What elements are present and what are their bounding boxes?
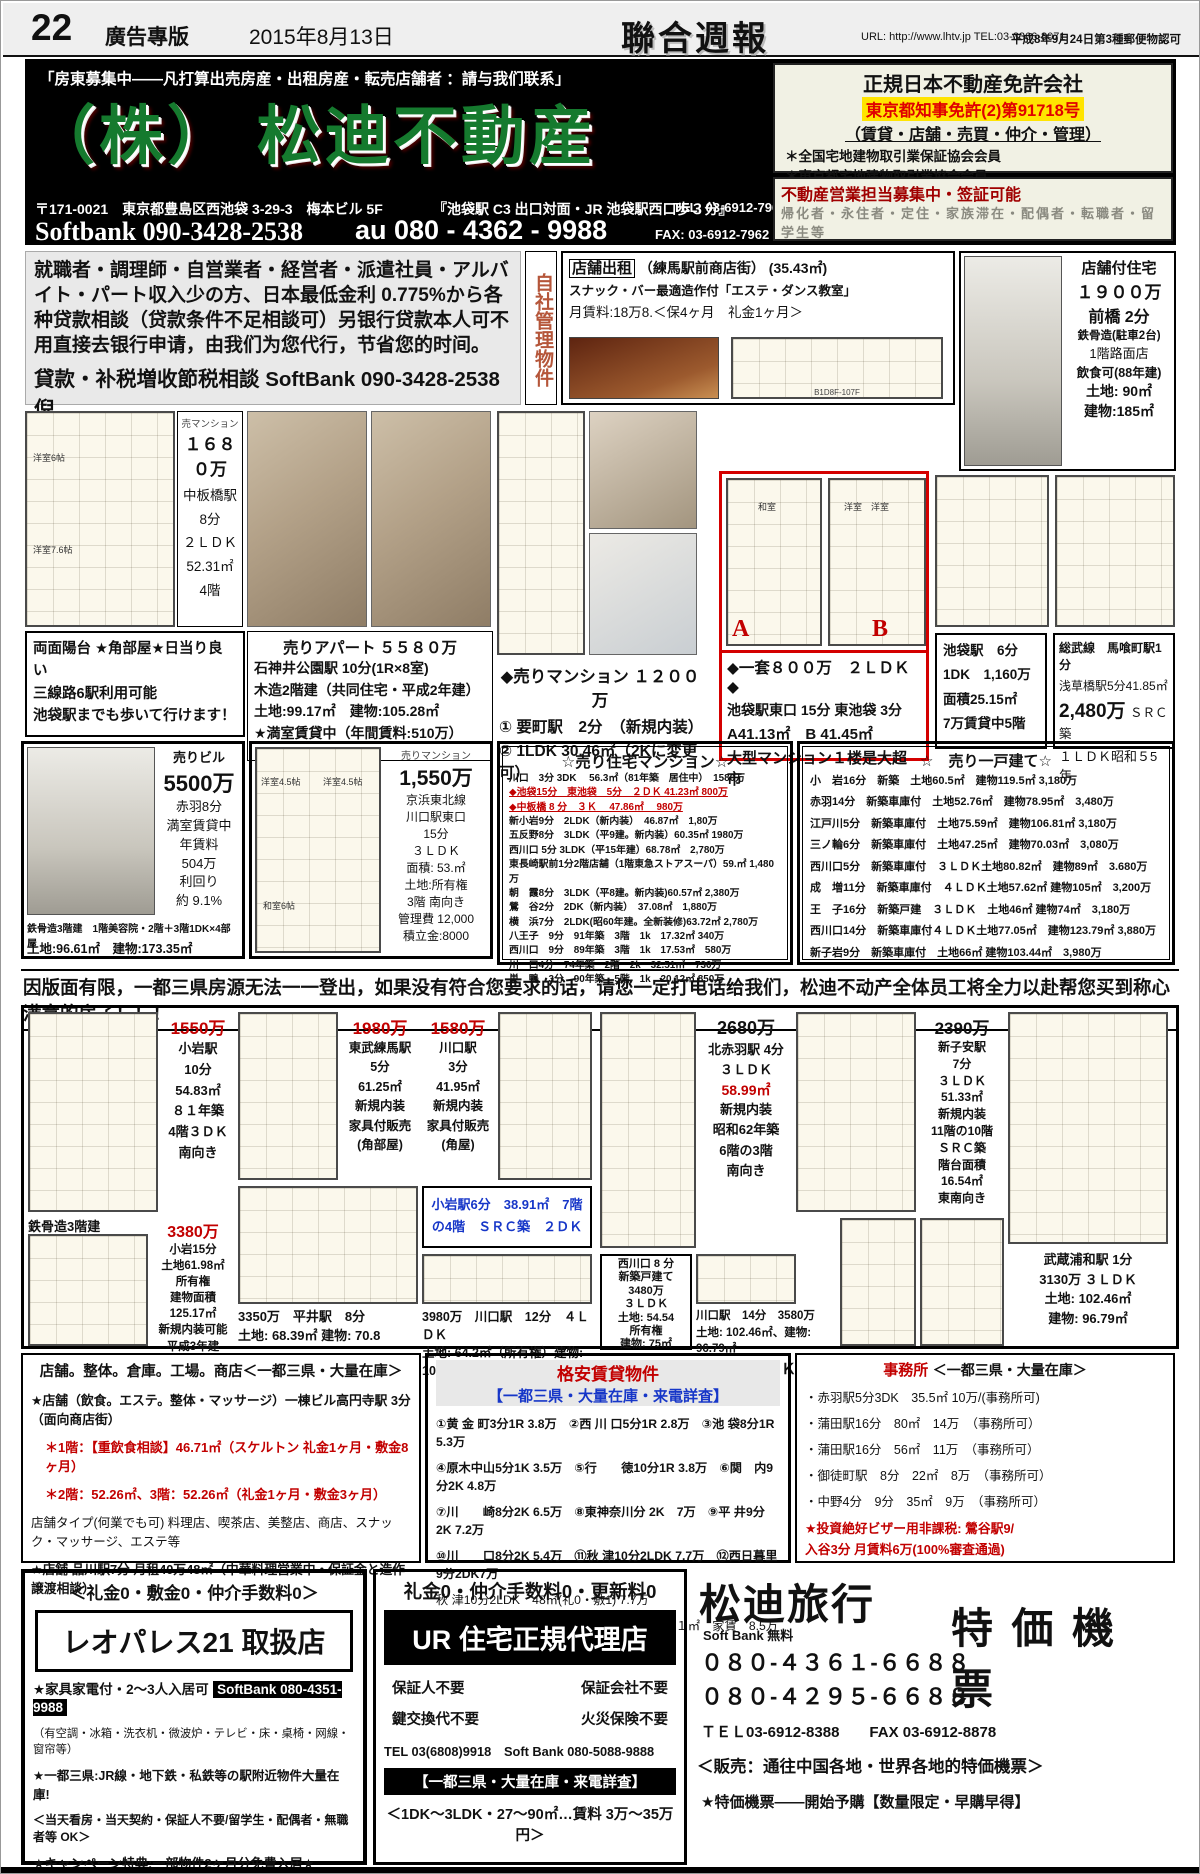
rental-box-subtitle: 【一都三県・大量在庫・来電詳査】 bbox=[488, 1388, 728, 1405]
license-number: 東京都知事免許(2)第91718号 bbox=[862, 97, 1085, 121]
featured-listing-800: 和室 洋室 洋室 A B ◆一套８００万 ２ＬＤＫ ◆ 池袋駅東口 15分 東池… bbox=[719, 471, 929, 761]
bath-photo bbox=[589, 533, 697, 655]
house-list-row: 三ノ輪6分 新築車庫付 土地47.25㎡ 建物70.03㎡ 3,080万 bbox=[810, 835, 1162, 856]
loan-ad: 就職者・調理師・自営業者・経営者・派遣社員・アルバイト・パート収入少の方、日本最… bbox=[25, 251, 521, 405]
leopalace-line4: ＜当天看房・当天契約・保証人不要/留学生・配偶者・無職者等 OK＞ bbox=[33, 1811, 355, 1845]
leopalace-title: レオパレス21 取扱店 bbox=[35, 1610, 353, 1672]
mid-card-2680: 2680万 北赤羽駅 4分 ３ＬＤＫ 58.99㎡ 新規内装 昭和62年築 6階… bbox=[700, 1014, 792, 1181]
loan-body: 就職者・調理師・自営業者・経営者・派遣社員・アルバイト・パート収入少の方、日本最… bbox=[34, 258, 512, 358]
listing-1200-info: ◆売りマンション １２００万 ① 要町駅 2分 （新規内装） ② 1LDK 30… bbox=[497, 661, 703, 753]
house-list-title: ☆ 売り一戸建て☆ bbox=[810, 750, 1162, 771]
issue-date: 2015年8月13日 bbox=[249, 21, 394, 51]
room-label: 洋室4.5帖 bbox=[323, 775, 363, 788]
shop-rent-location: （練馬駅前商店街） (35.43㎡) bbox=[639, 260, 827, 276]
property-photo-5580a bbox=[247, 411, 367, 627]
floorplan-mid-1980 bbox=[238, 1012, 338, 1180]
ur-top: 礼金0・仲介手数料0・更新料0 bbox=[384, 1578, 676, 1604]
listing-1680-notes: 両面陽台 ★角部屋★日当り良い 三線路6駅利用可能 池袋駅までも歩いて行けます！ bbox=[25, 631, 245, 737]
listing-5580-details: 石神井公園駅 10分(1R×8室) 木造2階建（共同住宅・平成2年建） 土地:9… bbox=[254, 658, 486, 745]
shop-rent-floorplan: B1D8F-107F bbox=[731, 337, 943, 399]
listing-1200-line1: ① 要町駅 2分 （新規内装） bbox=[499, 715, 701, 737]
ur-ad: 礼金0・仲介手数料0・更新料0 UR 住宅正規代理店 保証人不要 保証会社不要 … bbox=[373, 1569, 687, 1865]
travel-ticket-label: 特 価 機 票 bbox=[951, 1595, 1171, 1717]
mid-card-3380: 3380万 小岩15分 土地61.98㎡ 所有権 建物面積 125.17㎡ 新規… bbox=[152, 1218, 234, 1355]
travel-phone1: ０８０-４３６１-６６８８ bbox=[701, 1645, 971, 1677]
floorplan-sobu bbox=[1055, 475, 1175, 627]
floorplan-ikebukuro bbox=[935, 475, 1049, 627]
ur-guarantor: 保証人不要 bbox=[392, 1677, 465, 1698]
office-box-subtitle: ＜一都三県・大量在庫＞ bbox=[933, 1362, 1087, 1378]
shop-box-line1: ★店舗（飲食。エステ。整体・マッサージ）一棟ビル高円寺駅 3分（面向商店街） bbox=[31, 1390, 411, 1428]
leopalace-line1-wrap: ★家具家電付・2〜3人入居可 SoftBank 080-4351-9988 bbox=[33, 1678, 355, 1717]
listing-5500-price: 5500万 bbox=[158, 766, 240, 798]
listing-1550-tag: 売りマンション bbox=[384, 747, 488, 762]
ur-bottom: ＜1DK〜3LDK・27〜90㎡…賃料 3万〜35万円＞ bbox=[384, 1803, 676, 1845]
mansion-list-row: 西川口 5分 3LDK（平15年建）68.78㎡ 2,780万 bbox=[509, 844, 781, 858]
shop-house-price: １９００万 bbox=[1065, 278, 1173, 303]
leopalace-line3: ★一都三県:JR線・地下鉄・私鉄等の駅附近物件大量在庫! bbox=[33, 1765, 355, 1803]
shop-box-line2: ＊1階：【重飲食相談】46.71㎡（スケルトン 礼金1ヶ月・敷金8ヶ月） bbox=[31, 1437, 411, 1475]
mansion-list-row: ◆中板橋 8 分 ３Ｋ 47.86㎡ 980万 bbox=[509, 801, 781, 815]
floorplan-mid-3980 bbox=[422, 1254, 592, 1304]
listing-5500-tag: 売りビル bbox=[158, 747, 240, 766]
shop-house-station: 前橋 2分 bbox=[1065, 303, 1173, 327]
listing-800-title: ◆一套８００万 ２ＬＤＫ ◆ bbox=[727, 656, 921, 697]
floorplan-mid-2390 bbox=[796, 1012, 916, 1212]
shop-rent-box: 店舗出租 （練馬駅前商店街） (35.43㎡) スナック・バー最適造作付「エステ… bbox=[561, 251, 955, 405]
room-label: 洋室7.6帖 bbox=[33, 543, 73, 556]
house-list-row: 成 増11分 新築車庫付 ４ＬＤＫ土地57.62㎡ 建物105㎡ 3,200万 bbox=[810, 878, 1162, 899]
floorplan-mid-3350 bbox=[238, 1186, 418, 1304]
shop-box-line4: 店舗タイプ(何業でも可) 料理店、喫茶店、美整店、商店、スナック・マッサージ、エ… bbox=[31, 1512, 411, 1550]
floorplan-mid-1580 bbox=[498, 1012, 592, 1180]
room-label: 和室6帖 bbox=[263, 899, 295, 912]
license-services: （賃貸・店舗・売買・仲介・管理） bbox=[775, 121, 1171, 145]
shop-house-note: 飲食可(88年建) bbox=[1065, 362, 1173, 381]
mansion-list-row: 西川口 9分 89年築 3階 1k 17.53㎡ 580万 bbox=[509, 944, 781, 958]
leopalace-line2: （有空調・冰箱・洗衣机・微波炉・テレビ・床・桌椅・网線・窗帘等） bbox=[33, 1725, 355, 1757]
travel-ad: 松迪旅行 Soft Bank 無料 ０８０-４３６１-６６８８ ０８０-４２９５… bbox=[693, 1569, 1177, 1865]
ur-key-fee: 鍵交換代不要 bbox=[392, 1708, 479, 1729]
floorplan-caption: B1D8F-107F bbox=[733, 388, 941, 397]
leopalace-ad: ＜礼金0・敷金0・仲介手数料0＞ レオパレス21 取扱店 ★家具家電付・2〜3人… bbox=[21, 1569, 367, 1865]
section-label: 廣告專版 bbox=[105, 21, 189, 51]
mansion-list-row: 鶯 谷2分 2DK（新内装） 37.08㎡ 1,880万 bbox=[509, 901, 781, 915]
listing-sobu-info: 総武線 馬喰町駅1分 浅草橋駅5分41.85㎡ 2,480万 ＳＲＣ築 １ＬＤＫ… bbox=[1053, 633, 1175, 749]
mid-card-1580: 1580万 川口駅 3分 41.95㎡ 新規内装 家具付販売 (角屋) bbox=[422, 1014, 494, 1155]
room-label: 洋室6帖 bbox=[33, 451, 65, 464]
company-name: （株） 松迪不動産 bbox=[31, 85, 776, 177]
mid-1980-price: 1980万 bbox=[342, 1014, 418, 1039]
recruit-body: 帰化者・永住者・定住・家族滞在・配偶者・転職者・留学生等 bbox=[781, 205, 1165, 243]
newspaper-page: 22 廣告專版 2015年8月13日 聯合週報 URL: http://www.… bbox=[0, 0, 1200, 1874]
building-photo-5500 bbox=[27, 747, 155, 915]
rental-box-title: 格安賃貸物件 bbox=[557, 1365, 659, 1384]
plan-label-a: A bbox=[732, 616, 749, 643]
mid-2390-details: 新子安駅 7分 ３ＬＤＫ 51.33㎡ 新規内装 11階の10階 ＳＲＣ築 階台… bbox=[920, 1039, 1004, 1207]
recruit-box: 不動産営業担当募集中・签証可能 帰化者・永住者・定住・家族滞在・配偶者・転職者・… bbox=[773, 177, 1173, 241]
shop-house-structure: 鉄骨造(駐車2台) bbox=[1065, 327, 1173, 343]
mid-card-3480: 西川口 8 分 新築戸建て 3480万 ３ＬＤＫ 土地: 54.54 所有権 建… bbox=[600, 1254, 692, 1350]
mid-1550-details: 小岩駅 10分 54.83㎡ ８１年築 4階３ＤＫ 南向き bbox=[162, 1039, 234, 1164]
office-row: ・赤羽駅5分3DK 35.5㎡ 10万/(事務所可) bbox=[805, 1387, 1165, 1406]
rental-row: ⑦川 崎8分2K 6.5万 ⑧東神奈川分 2K 7万 ⑨平 井9分2K 7.2万 bbox=[436, 1502, 780, 1538]
recruit-title: 不動産営業担当募集中・签証可能 bbox=[781, 181, 1165, 205]
mid-1580-details: 川口駅 3分 41.95㎡ 新規内装 家具付販売 (角屋) bbox=[422, 1039, 494, 1155]
au-phone: au 080 - 4362 - 9988 bbox=[355, 215, 607, 246]
mid-1550-price: 1550万 bbox=[162, 1014, 234, 1039]
listing-ikebukuro-info: 池袋駅 6分 1DK 1,160万 面積25.15㎡ 7万賃貸中5階 bbox=[935, 633, 1047, 749]
newspaper-logo: 聯合週報 bbox=[621, 11, 769, 60]
mid-3380-label: 鉄骨造3階建 bbox=[28, 1216, 100, 1235]
ur-tel: TEL 03(6808)9918 Soft Bank 080-5088-9888 bbox=[384, 1741, 676, 1760]
room-label: 和室 bbox=[758, 500, 776, 513]
mid-koiwa-note: 小岩駅6分 38.91㎡ 7階 の4階 ＳＲＣ築 ２ＤＫ bbox=[422, 1186, 592, 1248]
rental-box-header: 格安賃貸物件 【一都三県・大量在庫・来電詳査】 bbox=[436, 1360, 780, 1406]
ur-title: UR 住宅正規代理店 bbox=[384, 1610, 676, 1665]
listing-5500-info: 売りビル 5500万 赤羽8分 満室賃貸中 年賃料 504万 利回り 約 9.1… bbox=[158, 747, 240, 911]
mansion-list-row: 横 浜7分 2LDK(昭60年建。全新装修)63.72㎡ 2,780万 bbox=[509, 916, 781, 930]
mansion-list-row: 朝 霞8分 3LDK（平8建。新内装)60.57㎡ 2,380万 bbox=[509, 887, 781, 901]
room-label: 洋室4.5帖 bbox=[261, 775, 301, 788]
office-row: ・御徒町駅 8分 22㎡ 8万 （事務所可） bbox=[805, 1465, 1165, 1484]
mid-card-3350: 3350万 平井駅 8分 土地: 68.39㎡ 建物: 70.8 bbox=[238, 1308, 418, 1346]
leopalace-top: ＜礼金0・敷金0・仲介手数料0＞ bbox=[33, 1579, 355, 1604]
office-invest-line2: 入谷3分 月賃料6万(100%審査通過) bbox=[805, 1539, 1165, 1558]
mid-3580-text: 川口駅 14分 3580万 土地: 102.46㎡、建物: 96.79㎡ bbox=[696, 1308, 836, 1358]
floorplan-1200 bbox=[497, 411, 585, 655]
kitchen-photo bbox=[589, 411, 697, 529]
mid-2390-price: 2390万 bbox=[920, 1014, 1004, 1039]
listing-1680-details: 中板橋駅 8分 ２ＬＤＫ 52.31㎡ 4階 bbox=[178, 484, 242, 602]
shop-house-box: 店舗付住宅 １９００万 前橋 2分 鉄骨造(駐車2台) 1階路面店 飲食可(88… bbox=[959, 251, 1176, 471]
plan-label-b: B bbox=[872, 616, 888, 643]
mansion-list-title: ☆売り住宅マンション☆ bbox=[509, 750, 781, 772]
mid-1980-details: 東武練馬駅 5分 61.25㎡ 新規内装 家具付販売 (角部屋) bbox=[342, 1039, 418, 1155]
mid-card-2390: 2390万 新子安駅 7分 ３ＬＤＫ 51.33㎡ 新規内装 11階の10階 Ｓ… bbox=[920, 1014, 1004, 1207]
office-box-header: 事務所 ＜一都三県・大量在庫＞ bbox=[805, 1359, 1165, 1380]
shop-house-floor: 1階路面店 bbox=[1065, 343, 1173, 362]
ur-guarantee-row1: 保証人不要 保証会社不要 bbox=[384, 1677, 676, 1698]
shop-house-building: 建物:185㎡ bbox=[1065, 401, 1173, 421]
shop-house-info: 店舗付住宅 １９００万 前橋 2分 鉄骨造(駐車2台) 1階路面店 飲食可(88… bbox=[1065, 257, 1173, 421]
mid-card-3130: 武蔵浦和駅 1分 3130万 ３ＬＤＫ 土地: 102.46㎡ 建物: 96.7… bbox=[1008, 1250, 1168, 1328]
listing-1680-price: １６８０万 bbox=[178, 430, 242, 480]
floorplan-mid-extra2 bbox=[920, 1218, 1004, 1346]
mansion-list: ☆売り住宅マンション☆ 川口 3分 3DK 56.3㎡（81年築 居住中） 15… bbox=[497, 741, 793, 965]
listing-5500-details: 赤羽8分 満室賃貸中 年賃料 504万 利回り 約 9.1% bbox=[158, 798, 240, 911]
association-member-1: ＊全国宅地建物取引業保証協会会員 bbox=[775, 145, 1171, 165]
mansion-list-row: 東長崎駅前1分2階店舗（1階東急ストアスーパ）59.㎡ 1,480万 bbox=[509, 858, 781, 887]
mid-card-1980: 1980万 東武練馬駅 5分 61.25㎡ 新規内装 家具付販売 (角部屋) bbox=[342, 1014, 418, 1155]
property-photo-5580b bbox=[371, 411, 491, 627]
mansion-list-row: 五反野8分 3LDK（平9建。新内装）60.35㎡ 1980万 bbox=[509, 829, 781, 843]
license-title: 正規日本不動産免許会社 bbox=[775, 68, 1171, 97]
softbank-phone: Softbank 090-3428-2538 bbox=[35, 217, 303, 247]
shop-box-line3: ＊2階：52.26㎡、3階：52.26㎡（礼金1ヶ月・敷金3ヶ月） bbox=[31, 1484, 411, 1503]
floorplan-mid-3580 bbox=[696, 1254, 796, 1304]
floorplan-1550: 洋室4.5帖 洋室4.5帖 和室6帖 bbox=[255, 747, 381, 953]
office-box: 事務所 ＜一都三県・大量在庫＞ ・赤羽駅5分3DK 35.5㎡ 10万/(事務所… bbox=[795, 1353, 1175, 1563]
page-number: 22 bbox=[31, 7, 72, 49]
office-row: ・蒲田駅16分 56㎡ 11万 （事務所可） bbox=[805, 1439, 1165, 1458]
travel-free-label: Soft Bank 無料 bbox=[703, 1625, 793, 1644]
postal-approval: 平成8年9月24日第3種郵便物認可 bbox=[1011, 31, 1181, 47]
house-list-row: 新子岩9分 新築車庫付 土地66㎡ 建物103.44㎡ 3,980万 bbox=[810, 943, 1162, 964]
mansion-list-row: 新小岩9分 2LDK（新内装） 46.87㎡ 1,80万 bbox=[509, 815, 781, 829]
license-box: 正規日本不動産免許会社 東京都知事免許(2)第91718号 （賃貸・店舗・売買・… bbox=[773, 63, 1173, 173]
mid-2680-line2: 新規内装 昭和62年築 6階の3階 南向き bbox=[700, 1100, 792, 1181]
house-list-row: 赤羽14分 新築車庫付 土地52.76㎡ 建物78.95㎡ 3,480万 bbox=[810, 792, 1162, 813]
listing-1680-info: 売マンション １６８０万 中板橋駅 8分 ２ＬＤＫ 52.31㎡ 4階 bbox=[177, 411, 243, 627]
office-row: ・中野4分 9分 35㎡ 9万 （事務所可） bbox=[805, 1491, 1165, 1510]
self-managed-label: 自社管理物件 bbox=[525, 251, 557, 405]
shop-rent-photo bbox=[569, 337, 719, 399]
travel-phone2: ０８０-４２９５-６６８８ bbox=[701, 1679, 971, 1711]
office-box-title: 事務所 bbox=[883, 1362, 928, 1379]
ur-guarantee-row2: 鍵交換代不要 火災保険不要 bbox=[384, 1708, 676, 1729]
leopalace-line1: ★家具家電付・2〜3人入居可 bbox=[33, 1682, 209, 1697]
mid-listings-section: 1550万 小岩駅 10分 54.83㎡ ８１年築 4階３ＤＫ 南向き 1980… bbox=[21, 1005, 1179, 1349]
shop-rent-price: 月賃料:18万8.＜保4ヶ月 礼金1ヶ月＞ bbox=[569, 301, 947, 321]
listing-1550-info: 売りマンション 1,550万 京浜東北線 川口駅東口 15分 ３ＬＤＫ 面積: … bbox=[384, 747, 488, 945]
rental-row: ①黄 金 町3分1R 3.8万 ②西 川 口5分1R 2.8万 ③池 袋8分1R… bbox=[436, 1414, 780, 1450]
fax-number: FAX: 03-6912-7962 bbox=[655, 227, 769, 242]
house-list-row: 江戸川5分 新築車庫付 土地75.59㎡ 建物106.81㎡ 3,180万 bbox=[810, 814, 1162, 835]
listing-5500-land: 土地:96.61㎡ 建物:173.35㎡ bbox=[27, 938, 239, 957]
shop-box-header: 店舗。整体。倉庫。工場。商店＜一都三県・大量在庫＞ bbox=[31, 1360, 411, 1381]
listing-1680-tag: 売マンション bbox=[178, 416, 242, 430]
floorplan-mid-3380 bbox=[28, 1234, 148, 1346]
floorplan-mid-3130 bbox=[1008, 1012, 1168, 1244]
listing-1550: 洋室4.5帖 洋室4.5帖 和室6帖 売りマンション 1,550万 京浜東北線 … bbox=[249, 741, 493, 959]
house-list: ☆ 売り一戸建て☆ 小 岩16分 新築 土地60.5㎡ 建物119.5㎡ 3,1… bbox=[797, 741, 1175, 965]
shop-house-photo bbox=[964, 256, 1062, 466]
mid-2680-line1: 北赤羽駅 4分 ３ＬＤＫ bbox=[700, 1040, 792, 1080]
company-address: 〒171-0021 東京都豊島区西池袋 3-29-3 梅本ビル 5F bbox=[35, 199, 383, 219]
mid-1580-price: 1580万 bbox=[422, 1014, 494, 1039]
travel-tel: ＴＥＬ03-6912-8388 FAX 03-6912-8878 bbox=[701, 1721, 996, 1742]
house-list-row: 西川口14分 新築車庫付４ＬＤＫ土地77.05㎡ 建物123.79㎡ 3,880… bbox=[810, 921, 1162, 942]
bottom-rule bbox=[1, 1867, 1200, 1874]
mid-3380-details: 小岩15分 土地61.98㎡ 所有権 建物面積 125.17㎡ 新規内装可能 平… bbox=[152, 1242, 234, 1355]
mid-3380-price: 3380万 bbox=[152, 1218, 234, 1242]
travel-sale-line: ＜販売：通往中国各地・世界各地的特価機票＞ bbox=[697, 1753, 1044, 1777]
listing-sobu-line2: 浅草橋駅5分41.85㎡ bbox=[1059, 677, 1169, 694]
listing-1200-title: ◆売りマンション １２００万 bbox=[499, 663, 701, 711]
listing-sobu-line1: 総武線 馬喰町駅1分 bbox=[1059, 639, 1169, 673]
mid-2680-price: 2680万 bbox=[700, 1014, 792, 1040]
ur-fire-insurance: 火災保険不要 bbox=[581, 1708, 668, 1729]
travel-title: 松迪旅行 bbox=[699, 1571, 875, 1632]
page-header: 22 廣告專版 2015年8月13日 聯合週報 URL: http://www.… bbox=[3, 3, 1199, 57]
rental-row: ④原木中山5分1K 3.5万 ⑤行 徳10分1R 3.8万 ⑥関 内9分2K 4… bbox=[436, 1458, 780, 1494]
house-list-row: 小 岩16分 新築 土地60.5㎡ 建物119.5㎡ 3,180万 bbox=[810, 771, 1162, 792]
listing-800-line1: 池袋駅東口 15分 東池袋 3分 bbox=[727, 700, 921, 720]
travel-promo-line: ★特価機票——開始予購【数量限定・早購早得】 bbox=[701, 1791, 1029, 1812]
floorplan-mid-extra1 bbox=[840, 1218, 916, 1346]
shop-rent-tag: 店舗出租 bbox=[569, 259, 635, 278]
shop-box: 店舗。整体。倉庫。工場。商店＜一都三県・大量在庫＞ ★店舗（飲食。エステ。整体・… bbox=[21, 1353, 421, 1563]
rental-box: 格安賃貸物件 【一都三県・大量在庫・来電詳査】 ①黄 金 町3分1R 3.8万 … bbox=[425, 1353, 791, 1563]
listing-sobu-price-line: 2,480万 ＳＲＣ築 bbox=[1059, 696, 1169, 743]
house-list-row: 王 子16分 新築戸建 ３ＬＤＫ 土地46㎡ 建物74㎡ 3,180万 bbox=[810, 900, 1162, 921]
shop-house-land: 土地: 90㎡ bbox=[1065, 381, 1173, 401]
listing-5500: 売りビル 5500万 赤羽8分 満室賃貸中 年賃料 504万 利回り 約 9.1… bbox=[21, 741, 245, 959]
ur-band: 【一都三県・大量在庫・来電詳査】 bbox=[384, 1768, 676, 1795]
tel-number: TEL: 03-6912-7961 bbox=[673, 200, 786, 215]
house-list-row: 西川口5分 新築車庫付 ３ＬＤＫ土地80.82㎡ 建物89㎡ 3.680万 bbox=[810, 857, 1162, 878]
office-row: ・蒲田駅16分 80㎡ 14万 （事務所可） bbox=[805, 1413, 1165, 1432]
listing-1550-price: 1,550万 bbox=[384, 762, 488, 792]
shop-rent-desc: スナック・バー最適造作付「エステ・ダンス教室」 bbox=[569, 280, 947, 299]
listing-sobu-price: 2,480万 bbox=[1059, 701, 1126, 722]
mansion-list-row: 八王子 9分 91年築 3階 1k 17.32㎡ 340万 bbox=[509, 930, 781, 944]
mansion-list-row: 川口 3分 3DK 56.3㎡（81年築 居住中） 1580万 bbox=[509, 772, 781, 786]
room-label: 洋室 洋室 bbox=[844, 500, 889, 513]
mid-2680-area: 58.99㎡ bbox=[700, 1080, 792, 1100]
mansion-list-row: ◆池袋15分 東池袋 5分 ２ＤＫ 41.23㎡ 800万 bbox=[509, 786, 781, 800]
office-invest-line1: ★投資絶好ビザー用非課税: 鶯谷駅9/ bbox=[805, 1518, 1165, 1537]
floorplan-mid-1550 bbox=[28, 1012, 158, 1212]
listing-5580-title: 売りアパート ５５８０万 bbox=[254, 636, 486, 658]
floorplan-1680: 洋室6帖 洋室7.6帖 bbox=[25, 411, 175, 627]
listing-1550-details: 京浜東北線 川口駅東口 15分 ３ＬＤＫ 面積: 53.㎡ 土地:所有権 3階 … bbox=[384, 792, 488, 945]
main-ad: 「房東募集中——凡打算出売房産・出租房産・転売店舗者 ：請与我们联系」 （株） … bbox=[25, 59, 1176, 245]
ur-guarantee-company: 保証会社不要 bbox=[581, 1677, 668, 1698]
shop-rent-header: 店舗出租 （練馬駅前商店街） (35.43㎡) bbox=[569, 257, 947, 278]
shop-house-title: 店舗付住宅 bbox=[1065, 257, 1173, 278]
floorplan-mid-2680 bbox=[600, 1012, 696, 1248]
mid-card-1550: 1550万 小岩駅 10分 54.83㎡ ８１年築 4階３ＤＫ 南向き bbox=[162, 1014, 234, 1164]
